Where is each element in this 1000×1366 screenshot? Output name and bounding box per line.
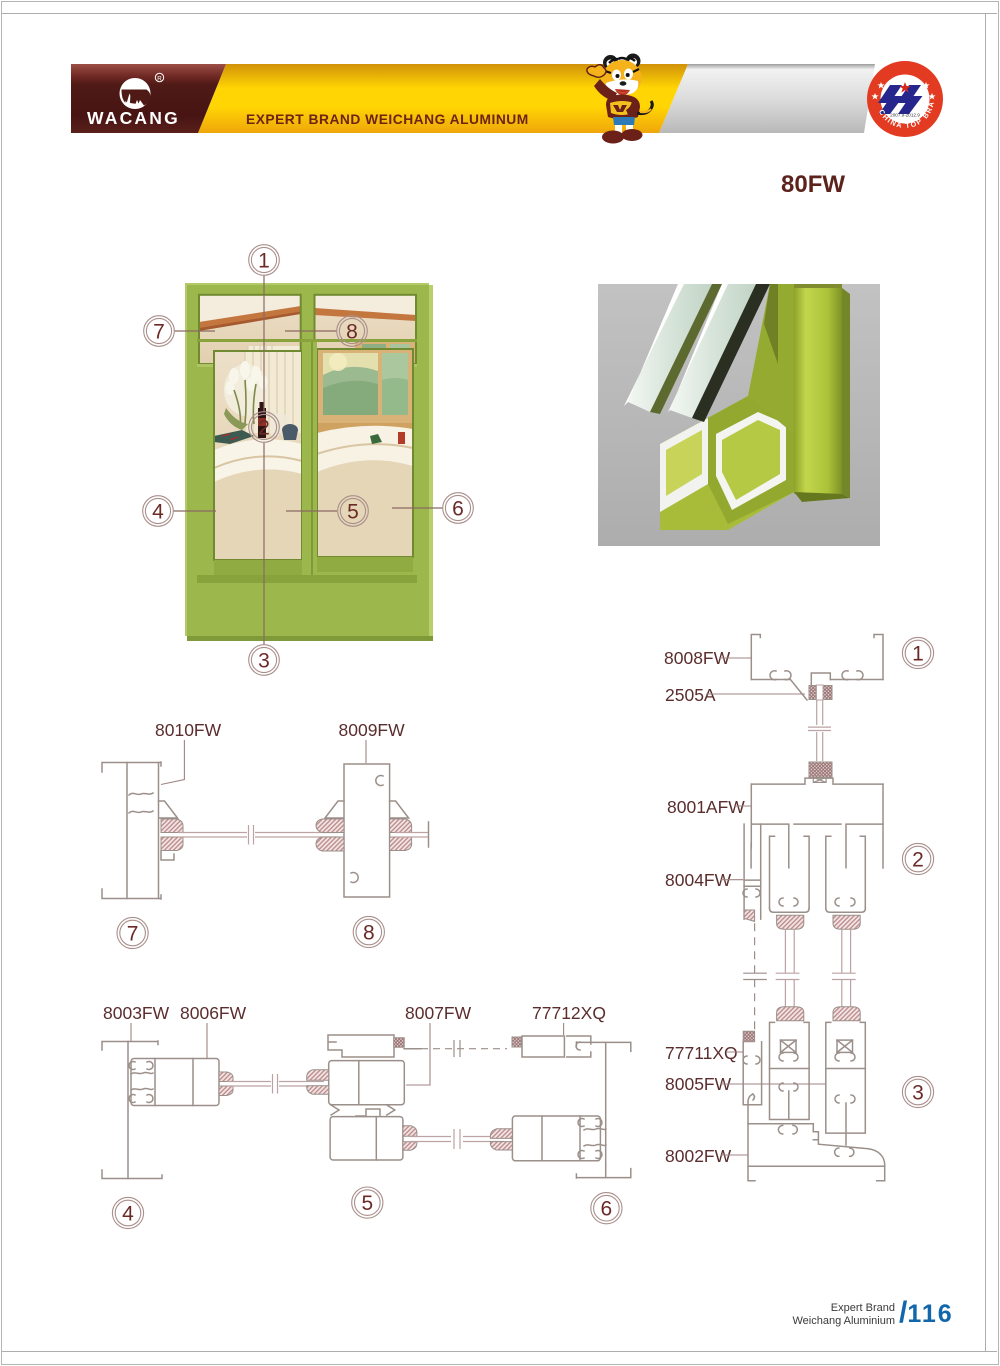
svg-text:2: 2 [912,849,924,872]
svg-text:3: 3 [258,650,270,673]
svg-text:7: 7 [127,923,139,946]
svg-text:R: R [157,75,162,82]
svg-text:3: 3 [912,1082,924,1105]
svg-text:5: 5 [347,501,359,524]
svg-text:5: 5 [361,1192,373,1215]
svg-text:1: 1 [258,250,270,273]
svg-text:8: 8 [363,922,375,945]
svg-text:2: 2 [258,417,270,440]
svg-text:77712XQ: 77712XQ [532,1003,606,1023]
svg-text:8001AFW: 8001AFW [667,797,745,817]
svg-text:8010FW: 8010FW [155,720,222,740]
svg-text:WACANG: WACANG [87,108,180,128]
svg-text:8003FW: 8003FW [103,1003,170,1023]
svg-text:1: 1 [912,643,924,666]
svg-text:2007.9-2012.9: 2007.9-2012.9 [890,113,920,118]
svg-text:80FW: 80FW [781,171,845,198]
svg-text:8006FW: 8006FW [180,1003,247,1023]
svg-text:6: 6 [601,1198,613,1221]
svg-text:8002FW: 8002FW [665,1146,732,1166]
svg-text:EXPERT BRAND WEICHANG ALUMINUM: EXPERT BRAND WEICHANG ALUMINUM [246,112,529,127]
svg-text:77711XQ: 77711XQ [665,1043,738,1063]
svg-text:7: 7 [153,321,165,344]
svg-text:4: 4 [152,501,164,524]
svg-text:8: 8 [346,321,358,344]
svg-text:2505A: 2505A [665,685,716,705]
svg-text:6: 6 [452,498,464,521]
svg-text:8007FW: 8007FW [405,1003,472,1023]
svg-text:4: 4 [122,1203,134,1226]
svg-text:8009FW: 8009FW [339,720,406,740]
